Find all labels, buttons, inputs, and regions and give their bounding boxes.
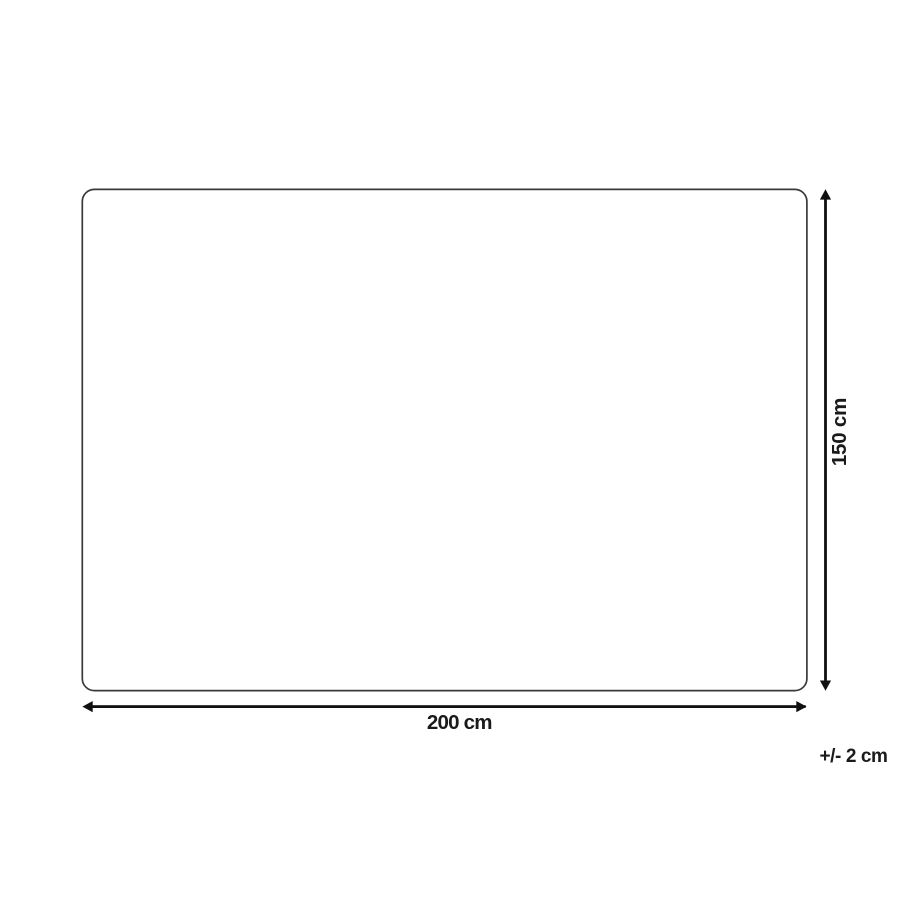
svg-text:+/- 2 cm: +/- 2 cm (819, 746, 887, 767)
svg-text:150 cm: 150 cm (828, 398, 851, 466)
svg-text:200 cm: 200 cm (427, 711, 492, 734)
